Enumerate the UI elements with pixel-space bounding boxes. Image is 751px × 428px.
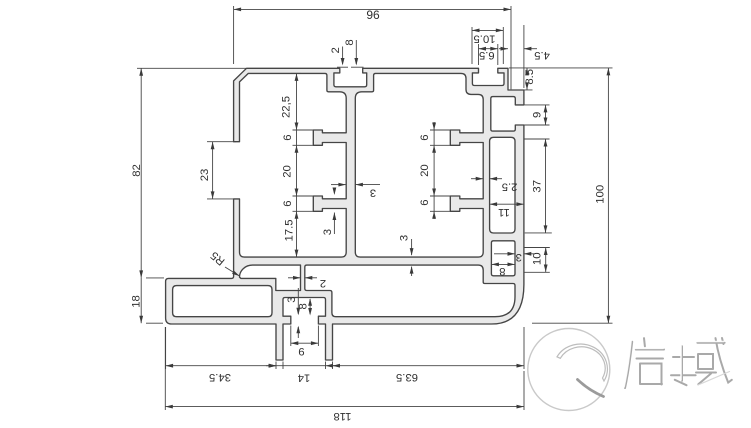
svg-text:8.5: 8.5 <box>524 69 536 85</box>
svg-text:18: 18 <box>131 295 143 308</box>
svg-text:20: 20 <box>419 164 431 177</box>
svg-text:3: 3 <box>399 235 411 241</box>
svg-text:6: 6 <box>419 199 431 205</box>
svg-text:9: 9 <box>531 112 543 118</box>
svg-text:14: 14 <box>298 372 311 384</box>
svg-text:22,5: 22,5 <box>280 96 292 118</box>
svg-text:6: 6 <box>282 200 294 206</box>
svg-text:2: 2 <box>320 277 326 289</box>
svg-text:96: 96 <box>366 8 380 22</box>
svg-text:17.5: 17.5 <box>283 220 295 242</box>
svg-text:6.5: 6.5 <box>479 49 495 61</box>
svg-text:4.5: 4.5 <box>534 49 550 61</box>
svg-text:3: 3 <box>370 187 376 199</box>
svg-text:9: 9 <box>298 345 304 357</box>
svg-text:2: 2 <box>330 47 342 53</box>
svg-text:37: 37 <box>532 180 544 193</box>
svg-text:118: 118 <box>333 410 351 422</box>
svg-text:6: 6 <box>282 134 294 140</box>
svg-text:8: 8 <box>297 303 309 309</box>
svg-text:3: 3 <box>322 229 334 235</box>
svg-text:8: 8 <box>344 39 356 45</box>
svg-text:6: 6 <box>419 134 431 140</box>
svg-text:34.5: 34.5 <box>209 371 231 383</box>
svg-text:2.5: 2.5 <box>502 180 518 192</box>
svg-text:3: 3 <box>516 251 522 263</box>
svg-text:63.5: 63.5 <box>396 371 418 383</box>
svg-text:8: 8 <box>499 265 505 277</box>
svg-text:10: 10 <box>531 253 543 266</box>
svg-text:10.5: 10.5 <box>474 33 496 45</box>
svg-text:3: 3 <box>286 296 298 302</box>
svg-text:20: 20 <box>281 165 293 178</box>
svg-text:11: 11 <box>498 206 510 218</box>
svg-text:82: 82 <box>131 164 143 177</box>
svg-text:100: 100 <box>594 185 606 204</box>
svg-text:23: 23 <box>199 169 211 182</box>
